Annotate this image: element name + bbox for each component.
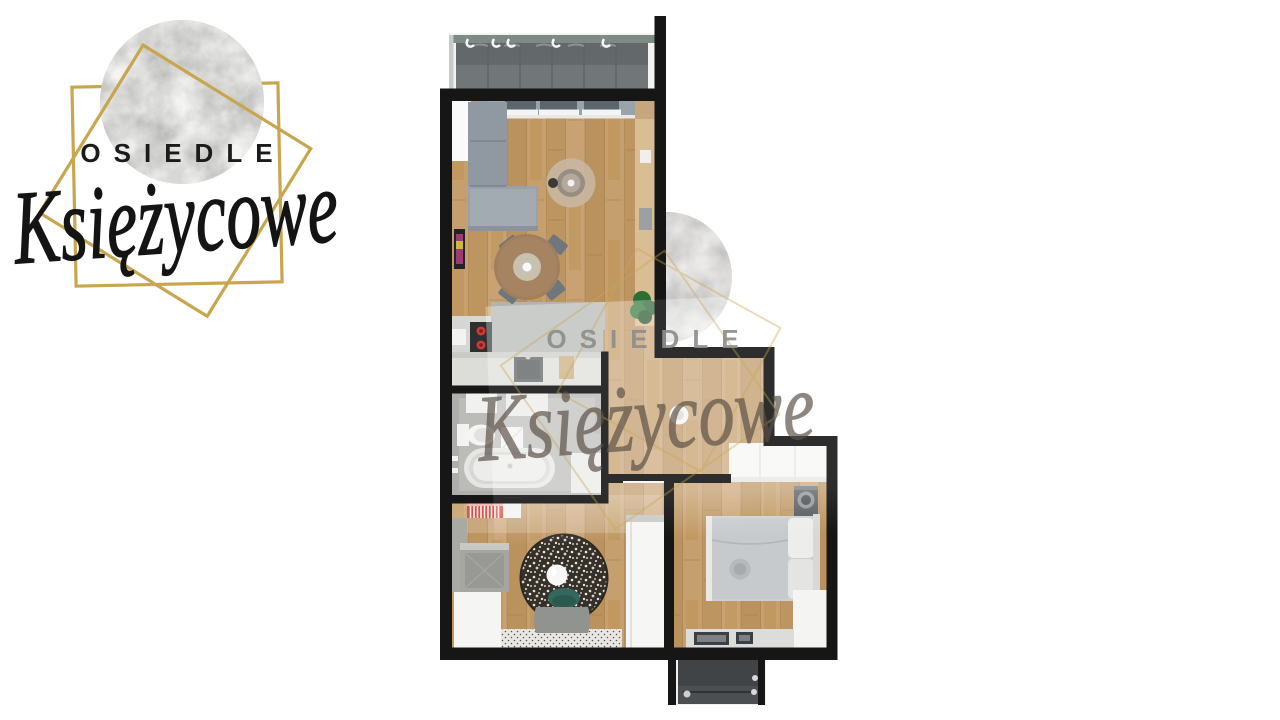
svg-text:Księżycowe: Księżycowe xyxy=(8,147,342,286)
svg-text:OSIEDLE: OSIEDLE xyxy=(546,324,751,354)
